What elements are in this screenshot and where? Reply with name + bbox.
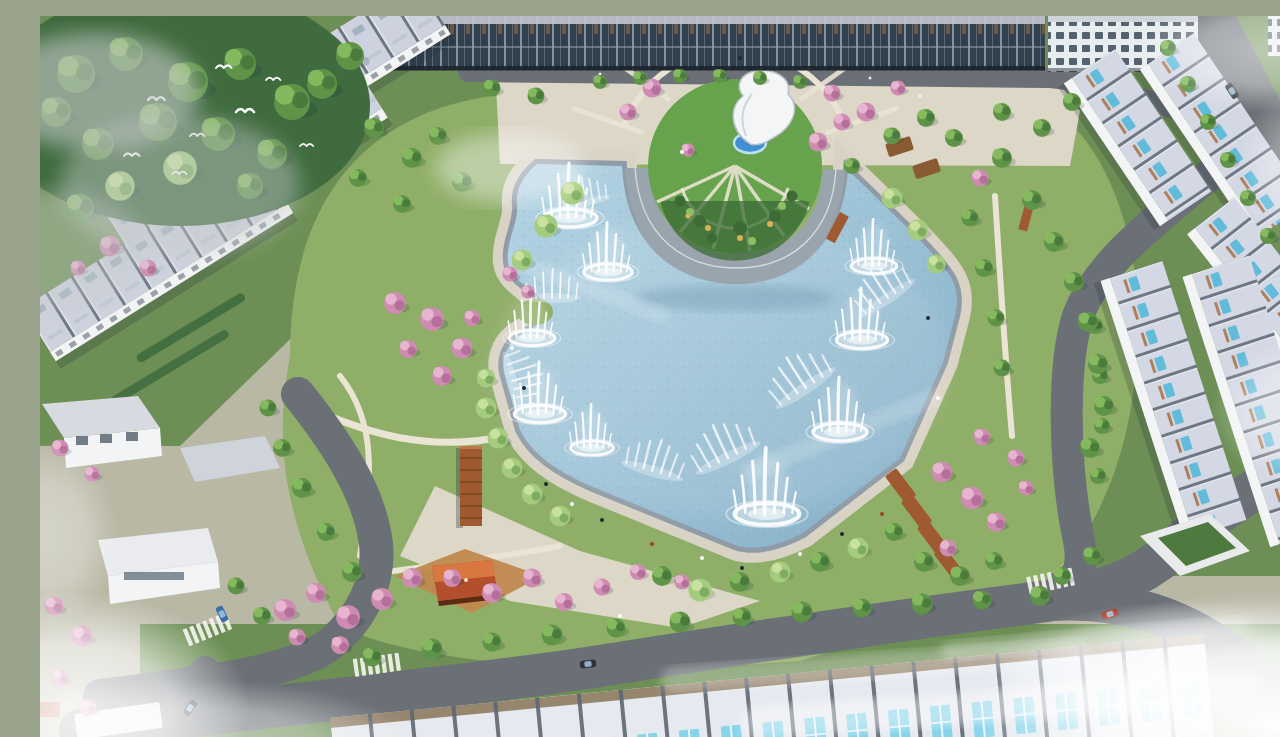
aerial-render: Bird's-eye 3D architectural rendering of…	[40, 16, 1280, 737]
scene-canvas	[40, 16, 1280, 737]
shophouse-strip-north	[370, 16, 1045, 71]
island-reflection	[635, 285, 835, 311]
mist-lake-northwest	[435, 133, 585, 203]
corten-tower	[456, 446, 482, 528]
